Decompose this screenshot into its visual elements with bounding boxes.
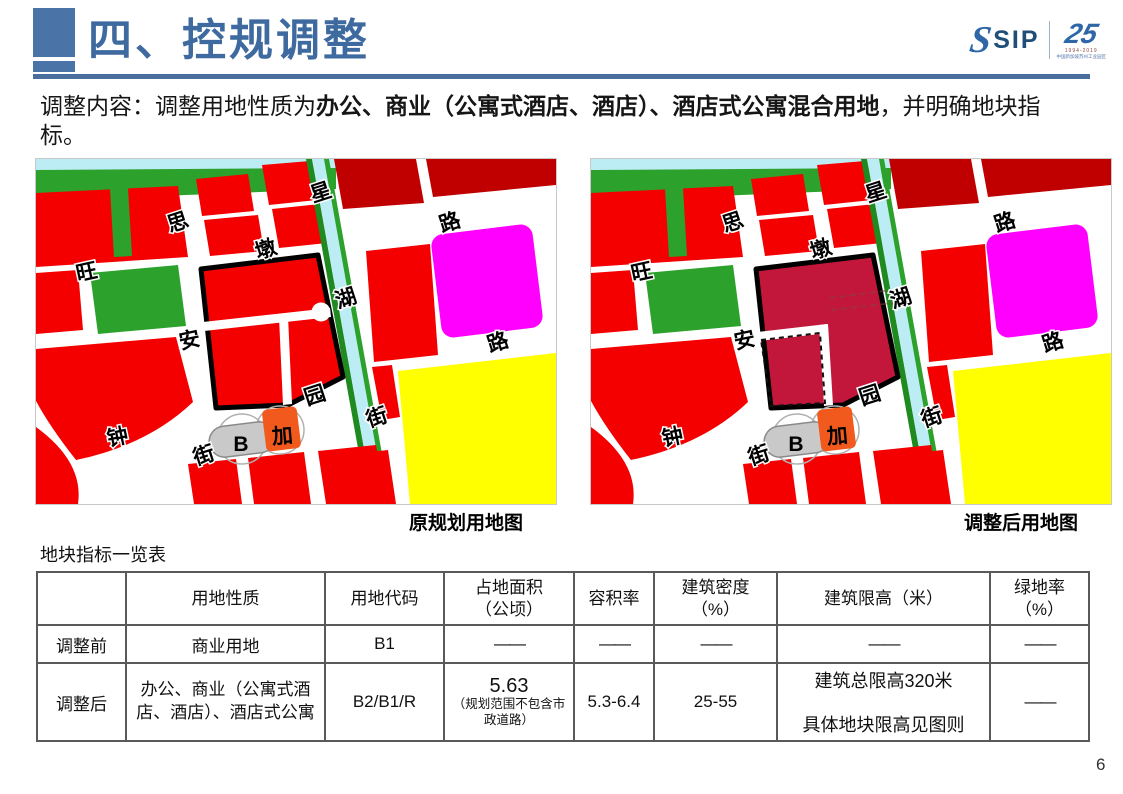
after-height-line1: 建筑总限高320米 bbox=[782, 667, 985, 693]
after-area-note: （规划范围不包含市政道路） bbox=[449, 697, 569, 728]
header-rule bbox=[33, 74, 1090, 79]
intro-prefix: 调整内容：调整用地性质为 bbox=[40, 93, 316, 119]
before-nature: 商业用地 bbox=[126, 625, 325, 663]
table-title: 地块指标一览表 bbox=[40, 541, 166, 567]
before-height: —— bbox=[777, 625, 990, 663]
table-row-after: 调整后 办公、商业（公寓式酒店、酒店）、酒店式公寓 B2/B1/R 5.63 （… bbox=[37, 663, 1089, 741]
parcel-indicator-table: 用地性质 用地代码 占地面积 （公顷） 容积率 建筑密度 （%） 建筑限高（米）… bbox=[36, 571, 1090, 742]
after-green: —— bbox=[990, 663, 1089, 741]
sip-wordmark: SIP bbox=[993, 26, 1039, 55]
header-green-ratio: 绿地率 （%） bbox=[990, 572, 1089, 625]
after-height-line2: 具体地块限高见图则 bbox=[782, 711, 985, 737]
header-land-code: 用地代码 bbox=[325, 572, 444, 625]
table-header-row: 用地性质 用地代码 占地面积 （公顷） 容积率 建筑密度 （%） 建筑限高（米）… bbox=[37, 572, 1089, 625]
sip-logo: S SIP 25 1994-2019 中国新加坡苏州工业园区 bbox=[946, 14, 1106, 66]
row-label-before: 调整前 bbox=[37, 625, 126, 663]
after-area-value: 5.63 bbox=[449, 675, 569, 697]
anniversary-org: 中国新加坡苏州工业园区 bbox=[1057, 55, 1107, 60]
land-use-map-original: 思星路旺墩湖安路园街钟街B加 bbox=[35, 158, 557, 505]
header-height-limit: 建筑限高（米） bbox=[777, 572, 990, 625]
map-label-加: 加 bbox=[825, 424, 849, 449]
before-code: B1 bbox=[325, 625, 444, 663]
anniversary-logo: 25 1994-2019 中国新加坡苏州工业园区 bbox=[1057, 20, 1107, 60]
caption-original-map: 原规划用地图 bbox=[35, 508, 555, 535]
after-area: 5.63 （规划范围不包含市政道路） bbox=[444, 663, 574, 741]
logo-divider bbox=[1049, 21, 1050, 59]
before-green: —— bbox=[990, 625, 1089, 663]
header-far: 容积率 bbox=[574, 572, 654, 625]
intro-bold-usage: 办公、商业（公寓式酒店、酒店）、酒店式公寓混合用地 bbox=[316, 93, 880, 119]
after-far: 5.3-6.4 bbox=[574, 663, 654, 741]
sip-swoosh-icon: S bbox=[967, 21, 993, 59]
page-number: 6 bbox=[1096, 755, 1105, 775]
table-row-before: 调整前 商业用地 B1 —— —— —— —— —— bbox=[37, 625, 1089, 663]
after-nature: 办公、商业（公寓式酒店、酒店）、酒店式公寓 bbox=[126, 663, 325, 741]
title-decor-square bbox=[33, 8, 75, 57]
map-label-B: B bbox=[233, 433, 248, 456]
after-code: B2/B1/R bbox=[325, 663, 444, 741]
land-use-map-adjusted: 思星路旺墩湖安路园街钟街B加 bbox=[590, 158, 1112, 505]
adjustment-description: 调整内容：调整用地性质为办公、商业（公寓式酒店、酒店）、酒店式公寓混合用地，并明… bbox=[40, 92, 1062, 150]
before-density: —— bbox=[654, 625, 777, 663]
map-label-B: B bbox=[788, 433, 803, 456]
header-area: 占地面积 （公顷） bbox=[444, 572, 574, 625]
row-label-after: 调整后 bbox=[37, 663, 126, 741]
header-land-nature: 用地性质 bbox=[126, 572, 325, 625]
header-empty bbox=[37, 572, 126, 625]
caption-adjusted-map: 调整后用地图 bbox=[590, 508, 1110, 535]
anniversary-25: 25 bbox=[1062, 20, 1100, 48]
after-density: 25-55 bbox=[654, 663, 777, 741]
before-far: —— bbox=[574, 625, 654, 663]
title-decor-bar bbox=[33, 61, 75, 72]
header-density: 建筑密度 （%） bbox=[654, 572, 777, 625]
before-area: —— bbox=[444, 625, 574, 663]
map-label-加: 加 bbox=[270, 424, 294, 449]
after-height: 建筑总限高320米 具体地块限高见图则 bbox=[777, 663, 990, 741]
page-title: 四、控规调整 bbox=[88, 4, 370, 68]
